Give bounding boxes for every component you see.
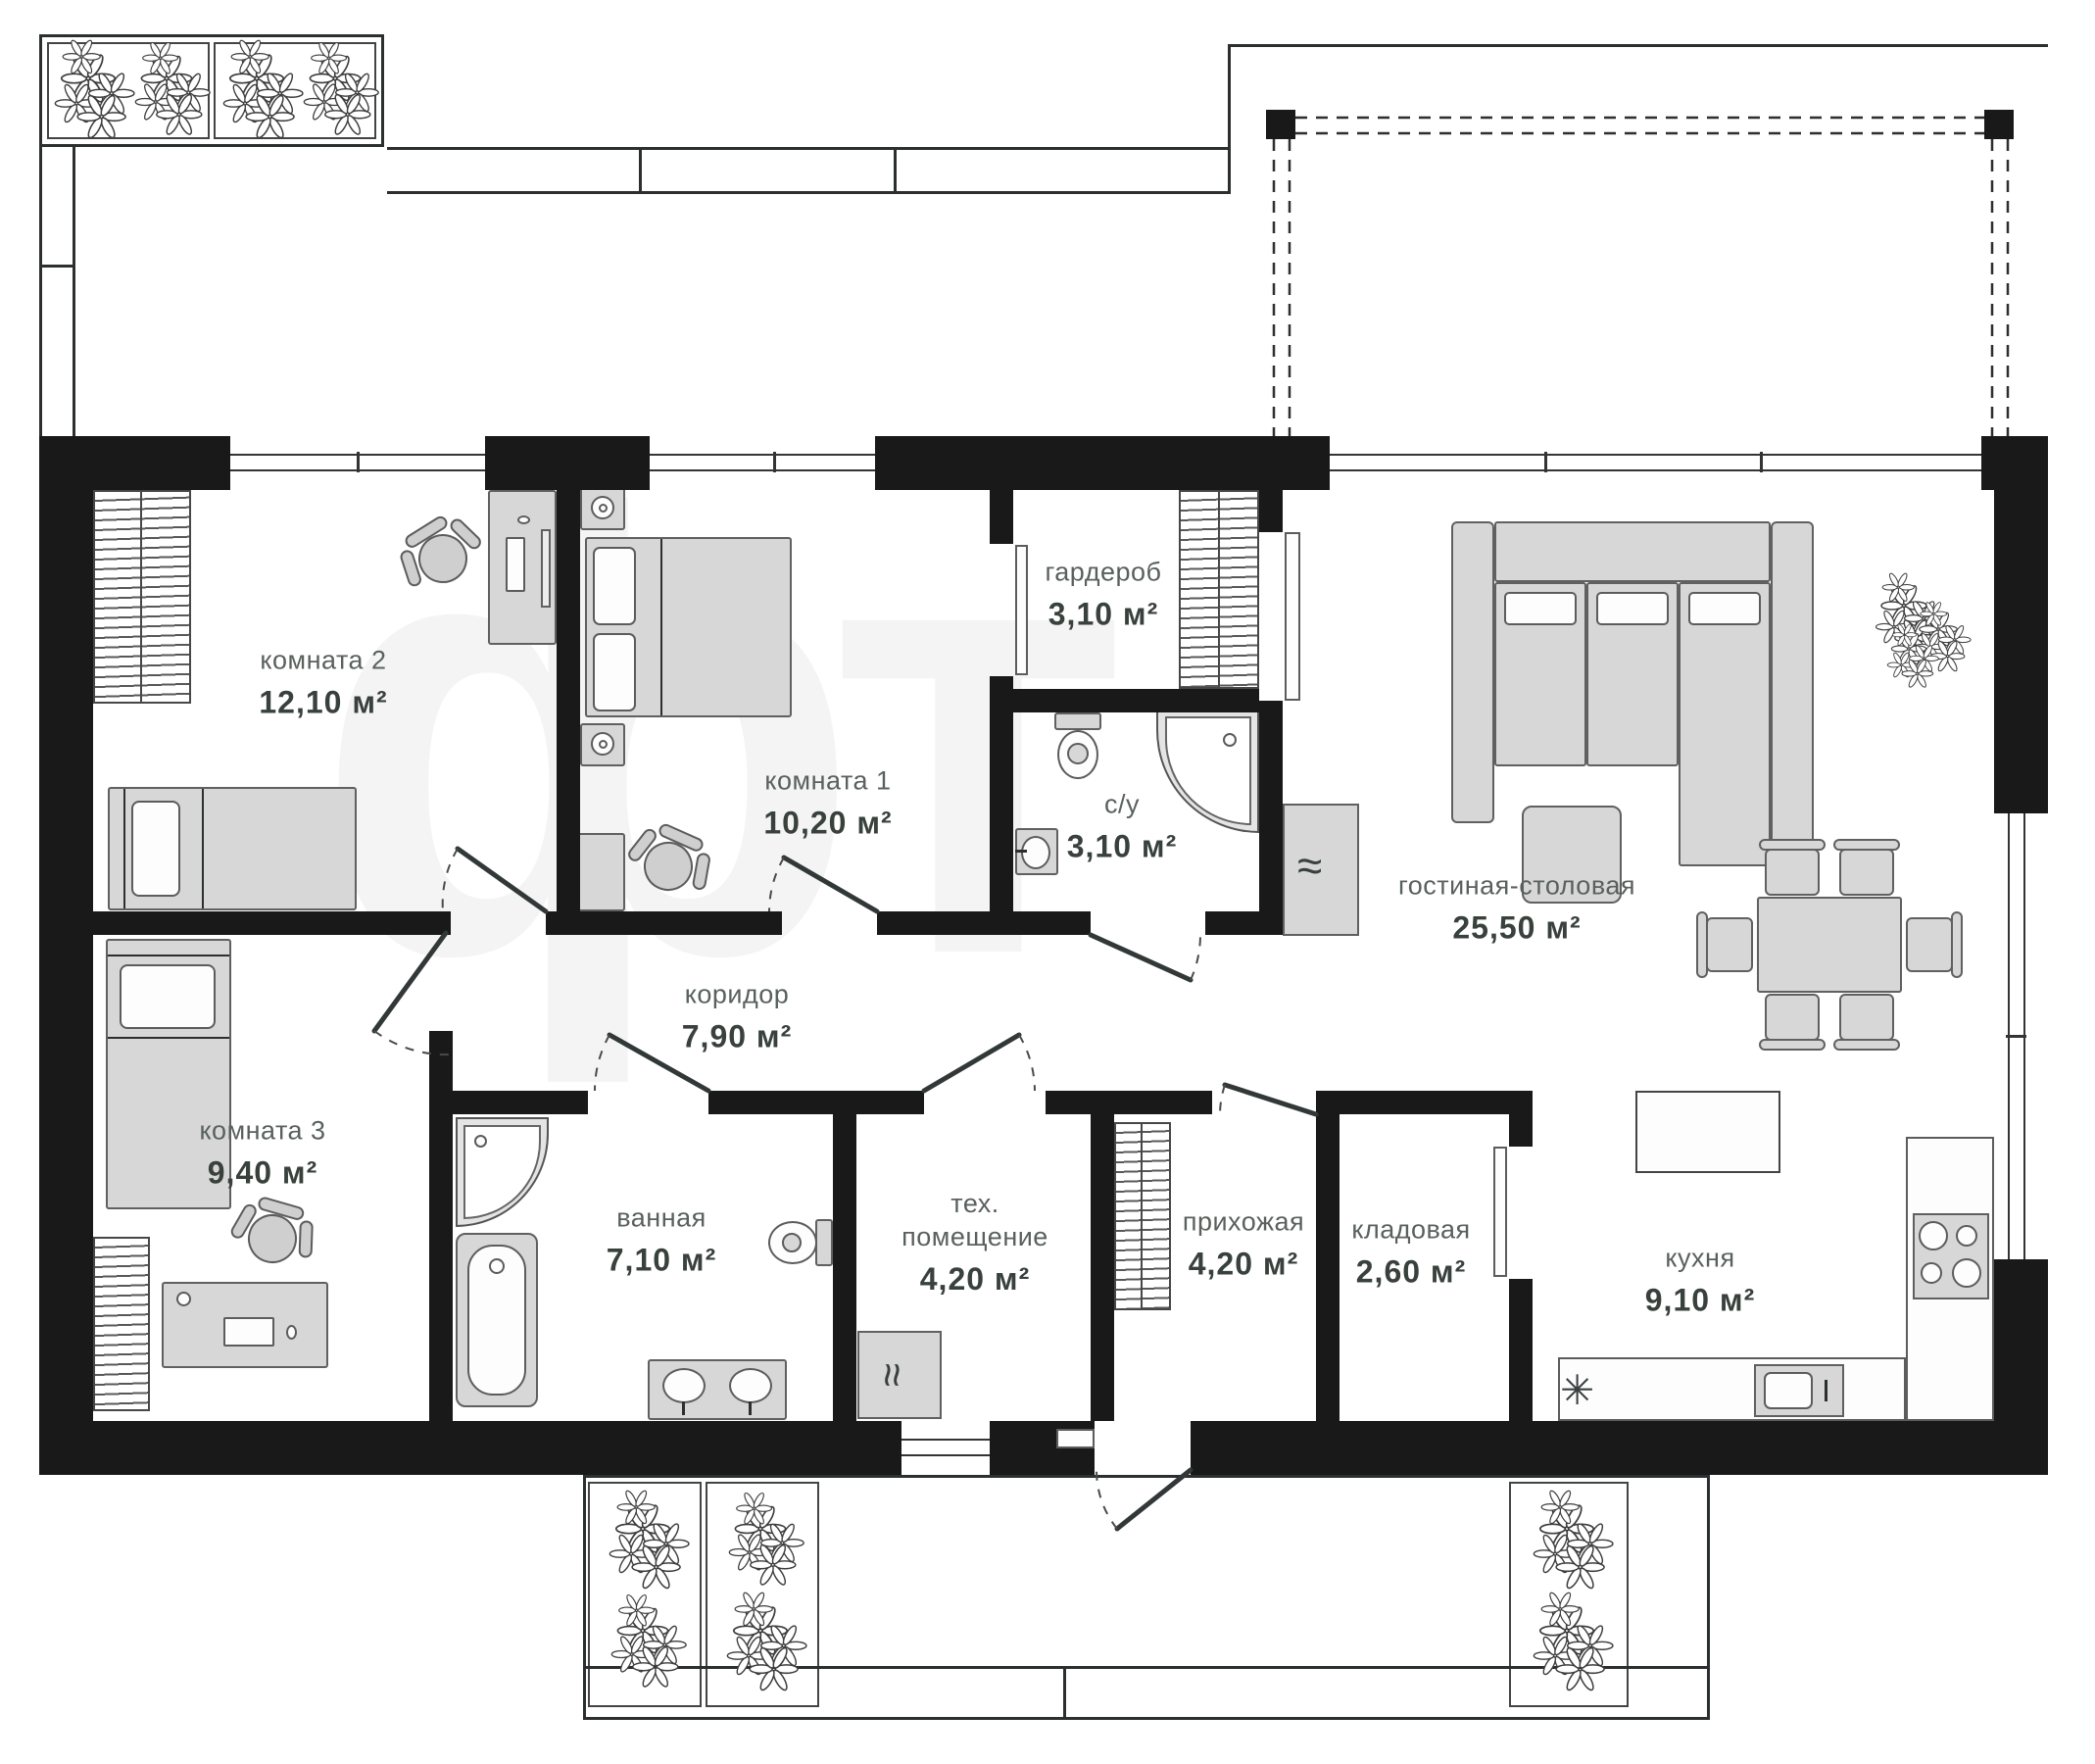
keyboard-room2 [506, 537, 525, 592]
toilet-seat-su [1067, 743, 1089, 764]
wall-wardrobe-south [990, 689, 1259, 712]
dining-chair [1906, 917, 1953, 972]
burner [1921, 1262, 1942, 1284]
wall-corridor-south [1046, 1091, 1212, 1114]
planter-box-top-inner-2 [214, 42, 376, 139]
edge-band-divider [894, 147, 897, 194]
monitor-room2 [541, 529, 551, 608]
label-room3: комната 39,40 м² [199, 1115, 325, 1193]
window-bottom [901, 1421, 990, 1475]
window-right [1994, 813, 2048, 1259]
wall-right [1994, 436, 2048, 813]
shower-drain-bath [474, 1135, 487, 1148]
wall-corridor-north [877, 911, 990, 935]
planter-box-bottom-3 [1509, 1482, 1629, 1707]
pillow-room1 [593, 547, 636, 625]
wardrobe-hall [1114, 1122, 1171, 1310]
wall-top [875, 436, 1330, 490]
window [230, 436, 485, 490]
planter-box-bottom-1 [588, 1482, 702, 1707]
sofa-pillow [1504, 592, 1577, 625]
label-room1: комната 110,20 м² [763, 765, 892, 843]
dining-chair-back [1833, 839, 1900, 851]
mouse-room2 [517, 515, 530, 524]
pillow-room3 [120, 964, 216, 1029]
wall-storage-north [1340, 1091, 1533, 1114]
floor-plan: фт [0, 0, 2095, 1764]
label-room2: комната 212,10 м² [259, 645, 387, 722]
wall-living-west [1259, 490, 1283, 532]
tap-right [749, 1401, 752, 1415]
burner [1952, 1258, 1981, 1288]
dining-chair [1765, 994, 1820, 1041]
porch-step-line [583, 1666, 1710, 1669]
dining-chair-back [1951, 911, 1963, 978]
sink-left [662, 1368, 706, 1403]
wall-corridor-north [546, 911, 782, 935]
toilet-seat-bath [782, 1233, 802, 1252]
sofa-pillow [1688, 592, 1761, 625]
wall-corridor-south [453, 1091, 588, 1114]
label-kitchen: кухня9,10 м² [1645, 1243, 1756, 1320]
bed-divider-room3 [108, 1037, 229, 1039]
wall-storage-kitchen [1509, 1279, 1533, 1421]
dining-chair [1765, 849, 1820, 896]
watermark: фт [314, 421, 1102, 1049]
terrace-post-right [1984, 110, 2014, 139]
kitchen-counter-bottom [1558, 1357, 1906, 1421]
lamp-room3 [176, 1292, 191, 1306]
tap-left [682, 1401, 685, 1415]
label-hall: прихожая4,20 м² [1183, 1206, 1304, 1284]
wall-top [485, 436, 650, 490]
label-wardrobe: гардероб3,10 м² [1046, 557, 1162, 634]
wardrobe-room3 [93, 1237, 150, 1411]
mouse-room3 [286, 1325, 297, 1340]
planter-box-bottom-2 [706, 1482, 819, 1707]
sofa-back [1494, 521, 1771, 582]
walkway-line [39, 265, 75, 268]
shower-drain-su [1223, 733, 1237, 747]
wall-bath-tech [833, 1114, 856, 1421]
wall-bottom [39, 1421, 901, 1475]
edge-band-divider [639, 147, 642, 194]
shower-su-inner [1165, 716, 1251, 825]
chair-room3 [233, 1200, 311, 1277]
planter-box-top-inner-1 [47, 42, 210, 139]
wall-su-south [1205, 911, 1259, 935]
door-leaf-storage [1493, 1147, 1507, 1277]
burner [1956, 1225, 1977, 1247]
walkway-line [39, 147, 42, 436]
fridge-icon: ✳ [1560, 1366, 1594, 1414]
door-leaf-living [1285, 532, 1300, 701]
burner [1919, 1221, 1948, 1250]
label-bathroom: ванная7,10 м² [607, 1202, 717, 1280]
terrace-dashed-outline [1274, 118, 2008, 436]
bed-divider-room1 [660, 539, 662, 715]
wall-left [39, 436, 93, 1475]
entrance-threshold [1056, 1429, 1095, 1448]
dining-chair-back [1696, 911, 1708, 978]
wall-su-west [990, 712, 1013, 935]
bed-headboard-room2 [123, 789, 125, 908]
wall-room2-room3 [93, 911, 451, 935]
terrace-edge-left [1228, 44, 1231, 194]
dining-chair-back [1833, 1039, 1900, 1051]
window [650, 436, 875, 490]
washbasin-bowl-su [1021, 836, 1050, 869]
window [1330, 436, 1981, 490]
dining-chair [1839, 849, 1894, 896]
lamp-room1 [599, 504, 608, 513]
dining-chair [1706, 917, 1753, 972]
water-heater-icon: ≈ [1297, 839, 1322, 892]
toilet-tank-su [1054, 712, 1101, 730]
porch-step-divider [1063, 1666, 1066, 1720]
tech-heater-icon: ≈ [867, 1363, 916, 1387]
bed-headboard-room3 [108, 955, 229, 956]
terrace-post-left [1266, 110, 1295, 139]
wardrobe-divider [1141, 1122, 1143, 1310]
sofa-pillow [1596, 592, 1669, 625]
wall-tech-hall [1091, 1114, 1114, 1421]
keyboard-room3 [223, 1317, 274, 1347]
label-su: с/у3,10 м² [1067, 789, 1178, 866]
dining-chair [1839, 994, 1894, 1041]
wall-bottom [1191, 1421, 2048, 1475]
edge-band-line [387, 147, 1228, 150]
wall-room2-room1 [557, 490, 580, 916]
washbasin-tap-su [1015, 850, 1027, 853]
label-storage: кладовая2,60 м² [1351, 1214, 1470, 1292]
label-tech: тех. помещение4,20 м² [877, 1188, 1073, 1298]
sink-right [729, 1368, 772, 1403]
terrace-edge-top [1228, 44, 2048, 47]
sofa-arm-left [1451, 521, 1494, 823]
dining-chair-back [1759, 1039, 1826, 1051]
dining-table [1757, 897, 1902, 993]
walkway-line [73, 147, 75, 436]
bed-divider-room2 [202, 789, 204, 908]
wall-hall-storage [1316, 1091, 1340, 1421]
lamp-room1 [599, 740, 608, 749]
wall-wardrobe-west [990, 490, 1013, 544]
pillow-room2 [131, 801, 180, 897]
edge-band-line [387, 191, 1228, 194]
toilet-tank-bath [815, 1219, 833, 1266]
pillow-room1 [593, 633, 636, 711]
wall-corridor-south [708, 1091, 924, 1114]
door-leaf-wardrobe [1015, 545, 1028, 675]
kitchen-sink-bowl [1764, 1372, 1813, 1409]
dining-chair-back [1759, 839, 1826, 851]
sofa-arm-right [1771, 521, 1814, 866]
wardrobe-divider [1218, 490, 1220, 689]
wardrobe-room2 [93, 490, 191, 704]
wall-storage-kitchen [1509, 1091, 1533, 1147]
wardrobe-divider [140, 490, 142, 704]
wall-living-west [1259, 701, 1283, 935]
bathtub-drain [489, 1258, 505, 1274]
plant-living [1876, 572, 1971, 688]
kitchen-faucet [1825, 1380, 1827, 1401]
label-living: гостиная-столовая25,50 м² [1398, 870, 1635, 948]
wall-room3-east [429, 1031, 453, 1421]
kitchen-island [1635, 1091, 1780, 1173]
label-corridor: коридор7,90 м² [682, 979, 793, 1056]
